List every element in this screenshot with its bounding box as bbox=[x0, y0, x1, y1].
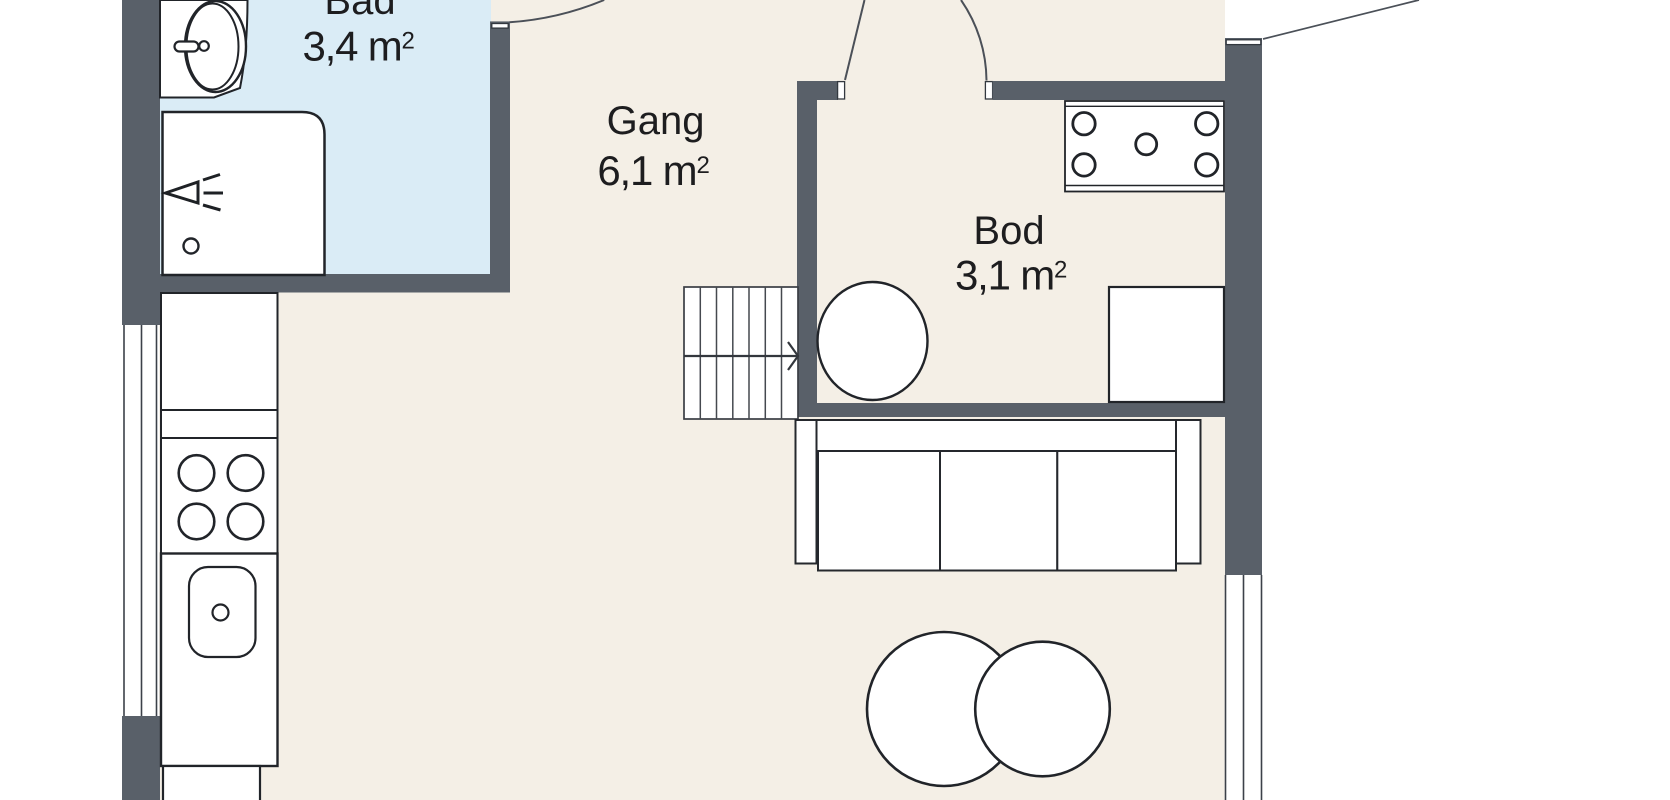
svg-text:Gang: Gang bbox=[607, 99, 705, 143]
svg-text:3,4 m2: 3,4 m2 bbox=[303, 23, 415, 70]
svg-text:6,1 m2: 6,1 m2 bbox=[597, 147, 709, 194]
svg-text:Bod: Bod bbox=[973, 209, 1044, 253]
svg-text:3,1 m2: 3,1 m2 bbox=[955, 252, 1067, 299]
svg-text:Bad: Bad bbox=[324, 0, 395, 23]
